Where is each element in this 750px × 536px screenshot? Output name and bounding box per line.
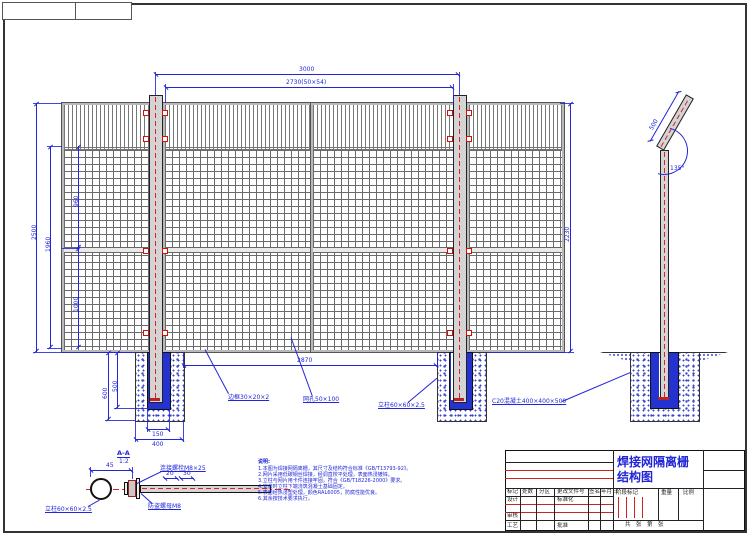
title-block-line bbox=[536, 488, 537, 531]
section-post-callout: 立柱60×60×2.5 bbox=[45, 506, 92, 513]
mid-rail bbox=[313, 247, 457, 253]
title-block-line bbox=[520, 488, 521, 531]
dim-right-height: 2230 bbox=[564, 227, 571, 242]
mesh-top-band bbox=[64, 105, 149, 150]
clamp bbox=[143, 136, 149, 142]
dim-arm-angle: 135° bbox=[670, 165, 684, 172]
frame-callout: 边框30×20×2 bbox=[228, 394, 269, 401]
clamp bbox=[143, 110, 149, 116]
clamp bbox=[466, 136, 472, 142]
dim-seg-upper: 960 bbox=[73, 196, 80, 207]
nut-callout: 防盗螺母M8 bbox=[148, 503, 181, 510]
stage-mark-tick bbox=[634, 497, 635, 518]
post-anchor-2 bbox=[454, 398, 464, 401]
title-block-line bbox=[658, 488, 659, 520]
drawing-title-line1: 焊接网隔离栅 bbox=[617, 455, 689, 470]
title-block-line bbox=[554, 488, 555, 531]
dim-bolt: 45 bbox=[106, 462, 114, 469]
side-post-anchor bbox=[658, 397, 669, 400]
title-block-red-line bbox=[505, 478, 613, 479]
note-line-6: 6.其余按技术要求执行。 bbox=[258, 496, 313, 503]
mesh-top-band bbox=[313, 105, 457, 150]
stage-mark-tick bbox=[626, 497, 627, 518]
post-centerline bbox=[459, 97, 460, 401]
clamp bbox=[466, 330, 472, 336]
bolt-callout: 连接螺栓M8×25 bbox=[160, 465, 206, 472]
clamp bbox=[447, 330, 453, 336]
extension-line bbox=[183, 420, 184, 442]
tb-change-no: 更改文件号 bbox=[557, 489, 585, 495]
post-centerline bbox=[664, 152, 665, 398]
tb-approve: 批准 bbox=[557, 523, 568, 529]
post-centerline bbox=[155, 97, 156, 401]
clamp bbox=[466, 110, 472, 116]
mesh-panel-right-partial bbox=[467, 103, 564, 352]
extension-line bbox=[105, 420, 135, 421]
clamp bbox=[162, 248, 168, 254]
tb-standard: 标准化 bbox=[557, 497, 574, 503]
dim-found-depth-line bbox=[108, 352, 109, 420]
mesh-top-band bbox=[469, 105, 562, 150]
tb-sign: 签名 bbox=[589, 489, 600, 495]
post-anchor-1 bbox=[150, 398, 160, 401]
dim-pocket-width-line bbox=[147, 429, 169, 430]
post-callout: 立柱60×60×2.5 bbox=[378, 402, 425, 409]
mesh-panel-center-left bbox=[163, 103, 313, 352]
section-scale: 1:2 bbox=[119, 458, 129, 465]
title-block-line bbox=[613, 520, 703, 521]
tb-zone: 分区 bbox=[539, 489, 550, 495]
tb-weight: 重量 bbox=[661, 490, 672, 496]
title-block-red-line bbox=[505, 470, 613, 471]
dim-panel-width-line bbox=[165, 87, 453, 88]
extension-line bbox=[453, 84, 454, 103]
clamp bbox=[143, 248, 149, 254]
concrete-callout: C20混凝土400×400×500 bbox=[492, 398, 566, 405]
clamp bbox=[466, 248, 472, 254]
extension-line bbox=[169, 408, 170, 432]
mesh-opening-callout: 网孔50×100 bbox=[303, 396, 339, 403]
mid-rail bbox=[469, 247, 562, 253]
clamp bbox=[162, 110, 168, 116]
side-post bbox=[660, 150, 669, 400]
clamp bbox=[447, 110, 453, 116]
clamp bbox=[162, 330, 168, 336]
dim-post-spacing: 3000 bbox=[299, 66, 314, 73]
corner-block-2 bbox=[75, 2, 132, 20]
dim-clear-span-line bbox=[183, 365, 437, 366]
dim-seg-lower: 1000 bbox=[73, 297, 80, 312]
extension-line bbox=[487, 352, 574, 353]
mesh-panel-left-partial bbox=[62, 103, 151, 352]
dim-total-height: 2500 bbox=[31, 225, 38, 240]
tb-check: 审核 bbox=[507, 513, 518, 519]
dim-nut2-line bbox=[180, 478, 194, 479]
title-block-line bbox=[505, 520, 613, 521]
post-section-circle bbox=[90, 478, 112, 500]
title-block-line bbox=[505, 462, 613, 463]
tb-scale: 比例 bbox=[683, 490, 694, 496]
title-block-line bbox=[703, 450, 704, 531]
dim-found-width: 400 bbox=[152, 441, 163, 448]
fence-post-1 bbox=[149, 95, 163, 403]
title-block-red-line bbox=[505, 512, 613, 513]
title-block-line bbox=[703, 470, 744, 471]
rail-bar bbox=[140, 485, 271, 493]
clamp bbox=[447, 136, 453, 142]
corner-block-1 bbox=[2, 2, 77, 20]
dim-found-width-line bbox=[135, 439, 183, 440]
section-title: A-A bbox=[117, 449, 130, 458]
dim-mesh-height: 1960 bbox=[45, 237, 52, 252]
stage-mark-tick bbox=[642, 497, 643, 518]
clamp bbox=[162, 136, 168, 142]
title-block-line bbox=[678, 488, 679, 520]
drawing-title-line2: 结构图 bbox=[617, 470, 653, 485]
fence-post-2 bbox=[453, 95, 467, 403]
mesh-panel-center-right bbox=[311, 103, 459, 352]
clamp bbox=[143, 330, 149, 336]
title-block-red-line bbox=[505, 504, 613, 505]
dim-found-depth: 600 bbox=[102, 388, 109, 399]
notes-title: 说明: bbox=[258, 459, 270, 466]
bolt-nut bbox=[128, 480, 136, 497]
drawing-page: 3000 2730(50×54) 2500 1960 960 1000 2230… bbox=[0, 0, 750, 536]
dim-panel-width: 2730(50×54) bbox=[286, 79, 326, 86]
dim-bolt-line bbox=[90, 470, 132, 471]
mesh-top-band bbox=[165, 105, 311, 150]
tb-mark: 标记 bbox=[507, 489, 518, 495]
tb-stage: 阶段标记 bbox=[616, 490, 638, 496]
tb-count: 处数 bbox=[522, 489, 533, 495]
dim-pocket-depth: 500 bbox=[112, 381, 119, 392]
tb-design: 设计 bbox=[507, 497, 518, 503]
tb-sheet: 共 张 第 张 bbox=[625, 522, 664, 528]
stage-mark-tick bbox=[618, 497, 619, 518]
mid-rail bbox=[165, 247, 311, 253]
dim-nut1-line bbox=[164, 478, 178, 479]
extension-line bbox=[114, 408, 147, 409]
dim-pocket-width: 150 bbox=[152, 431, 163, 438]
tb-process: 工艺 bbox=[507, 523, 518, 529]
bar-centerline bbox=[142, 488, 269, 489]
clamp bbox=[447, 248, 453, 254]
dim-post-spacing-line bbox=[155, 74, 459, 75]
